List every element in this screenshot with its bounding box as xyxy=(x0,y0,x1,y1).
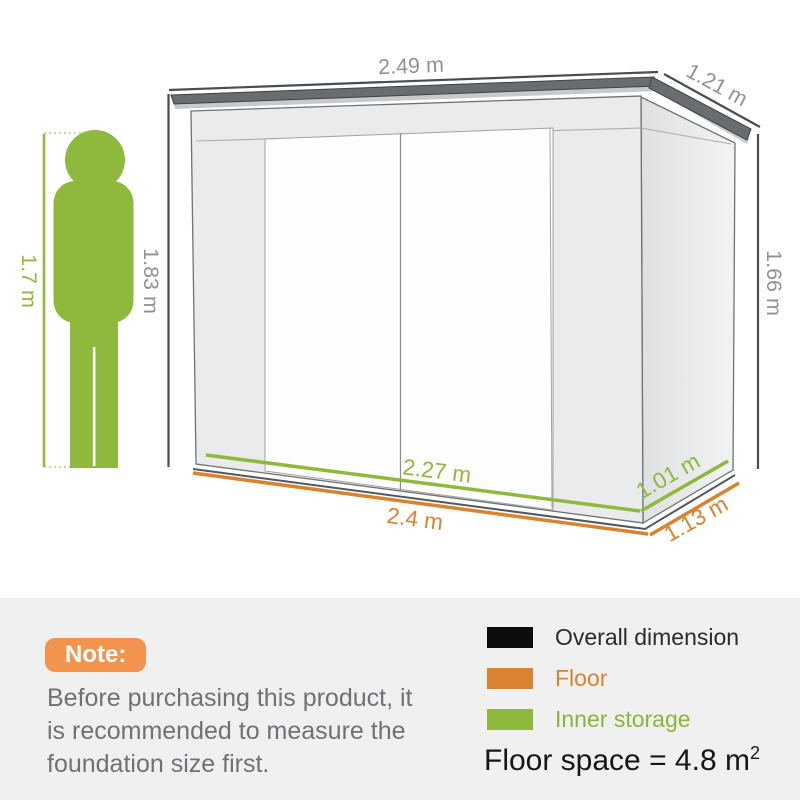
shed-doors xyxy=(265,128,553,510)
legend: Overall dimension Floor Inner storage xyxy=(487,627,739,750)
info-panel: Note: Before purchasing this product, it… xyxy=(0,598,800,800)
legend-row-floor: Floor xyxy=(487,668,739,689)
floor-space-text: Floor space = 4.8 m xyxy=(484,744,750,777)
floor-label: Floor xyxy=(555,667,607,690)
note-text: Before purchasing this product, it is re… xyxy=(47,682,412,781)
note-line-3: foundation size first. xyxy=(47,748,412,781)
person-figure xyxy=(54,130,134,468)
legend-row-overall: Overall dimension xyxy=(487,627,739,648)
inner-storage-swatch xyxy=(487,709,533,730)
floor-space-value: Floor space = 4.8 m2 xyxy=(484,744,760,778)
note-badge: Note: xyxy=(45,638,146,672)
note-line-1: Before purchasing this product, it xyxy=(47,682,412,715)
overall-dimension-label: Overall dimension xyxy=(555,626,739,649)
label-overall-width: 2.49 m xyxy=(378,53,445,80)
person-height-label: 1.7 m xyxy=(17,254,41,308)
label-rear-height: 1.66 m xyxy=(762,250,786,316)
shed-dimension-diagram: 1.7 m xyxy=(0,0,800,598)
inner-storage-label: Inner storage xyxy=(555,708,691,731)
note-line-2: is recommended to measure the xyxy=(47,715,412,748)
product-dimension-screenshot: 1.7 m xyxy=(0,0,800,800)
legend-row-inner-storage: Inner storage xyxy=(487,709,739,730)
label-front-height: 1.83 m xyxy=(139,248,163,314)
shed-diagram-svg: 1.7 m xyxy=(0,0,800,598)
label-floor-width: 2.4 m xyxy=(385,503,444,535)
overall-dimension-swatch xyxy=(487,627,533,648)
floor-space-superscript: 2 xyxy=(750,743,760,763)
floor-swatch xyxy=(487,668,533,689)
